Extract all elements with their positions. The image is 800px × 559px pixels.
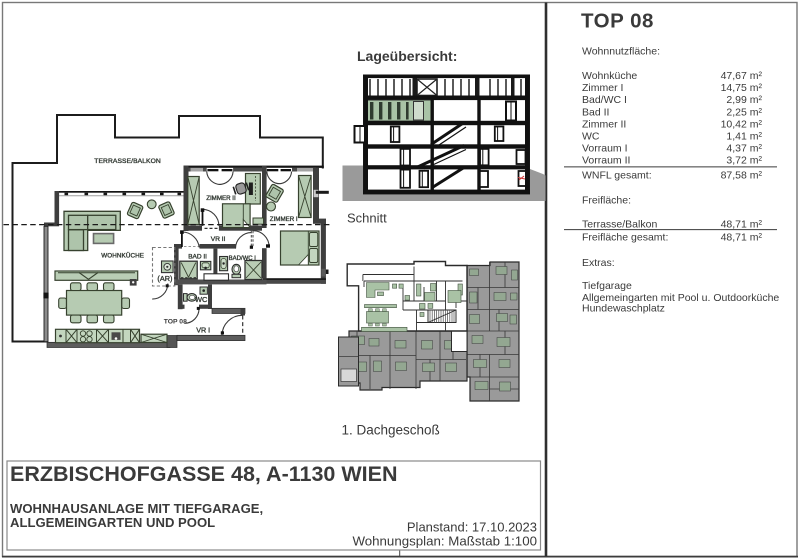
svg-text:Wohnküche: Wohnküche <box>582 70 637 82</box>
svg-text:WOHNKÜCHE: WOHNKÜCHE <box>101 252 144 260</box>
svg-text:2,99 m²: 2,99 m² <box>726 94 762 106</box>
svg-text:Wohnungsplan: Maßstab 1:100: Wohnungsplan: Maßstab 1:100 <box>352 534 537 549</box>
svg-text:47,67 m²: 47,67 m² <box>721 70 763 82</box>
svg-text:2,25 m²: 2,25 m² <box>726 106 762 118</box>
svg-text:Freifläche:: Freifläche: <box>582 195 631 207</box>
svg-text:Planstand: 17.10.2023: Planstand: 17.10.2023 <box>407 520 537 535</box>
svg-text:Tiefgarage: Tiefgarage <box>582 280 632 292</box>
svg-text:WOHNHAUSANLAGE MIT TIEFGARAGE,: WOHNHAUSANLAGE MIT TIEFGARAGE, <box>10 501 263 516</box>
svg-text:TOP 08: TOP 08 <box>164 319 187 326</box>
svg-text:TERRASSE/BALKON: TERRASSE/BALKON <box>94 158 161 165</box>
svg-text:ALLGEMEINGARTEN UND POOL: ALLGEMEINGARTEN UND POOL <box>10 515 215 530</box>
svg-text:TOP 08: TOP 08 <box>581 10 654 33</box>
svg-text:87,58 m²: 87,58 m² <box>721 169 763 181</box>
svg-text:Lageübersicht:: Lageübersicht: <box>357 48 457 64</box>
svg-text:BAD/WC I: BAD/WC I <box>229 256 257 262</box>
svg-text:WC: WC <box>195 295 208 304</box>
svg-text:Hundewaschplatz: Hundewaschplatz <box>582 303 665 315</box>
svg-text:1,41 m²: 1,41 m² <box>726 131 762 143</box>
svg-text:14,75 m²: 14,75 m² <box>721 82 763 94</box>
svg-text:Freifläche gesamt:: Freifläche gesamt: <box>582 231 668 243</box>
svg-text:3,72 m²: 3,72 m² <box>726 155 762 167</box>
svg-text:BAD II: BAD II <box>188 254 207 261</box>
svg-text:Vorraum II: Vorraum II <box>582 155 630 167</box>
svg-text:Bad II: Bad II <box>582 106 609 118</box>
svg-text:VR I: VR I <box>196 325 210 334</box>
svg-text:10,42 m²: 10,42 m² <box>721 118 763 130</box>
svg-text:(AR): (AR) <box>157 274 172 283</box>
svg-text:Terrasse/Balkon: Terrasse/Balkon <box>582 219 657 231</box>
svg-text:48,71 m²: 48,71 m² <box>721 231 763 243</box>
svg-text:4,37 m²: 4,37 m² <box>726 143 762 155</box>
svg-text:Vorraum I: Vorraum I <box>582 143 628 155</box>
svg-text:ZIMMER II: ZIMMER II <box>206 195 236 202</box>
svg-text:Extras:: Extras: <box>582 257 615 269</box>
svg-text:ZIMMER I: ZIMMER I <box>270 216 298 223</box>
svg-text:1. Dachgeschoß: 1. Dachgeschoß <box>342 423 440 438</box>
svg-text:Wohnnutzfläche:: Wohnnutzfläche: <box>582 46 660 58</box>
svg-text:VR II: VR II <box>211 236 226 243</box>
svg-text:Schnitt: Schnitt <box>347 211 387 226</box>
svg-text:Bad/WC I: Bad/WC I <box>582 94 627 106</box>
svg-text:WNFL gesamt:: WNFL gesamt: <box>582 169 652 181</box>
svg-text:ERZBISCHOFGASSE 48, A-1130 WIE: ERZBISCHOFGASSE 48, A-1130 WIEN <box>10 462 398 486</box>
svg-text:Zimmer II: Zimmer II <box>582 118 626 130</box>
svg-text:48,71 m²: 48,71 m² <box>721 219 763 231</box>
svg-text:Zimmer I: Zimmer I <box>582 82 623 94</box>
svg-text:WC: WC <box>582 131 600 143</box>
